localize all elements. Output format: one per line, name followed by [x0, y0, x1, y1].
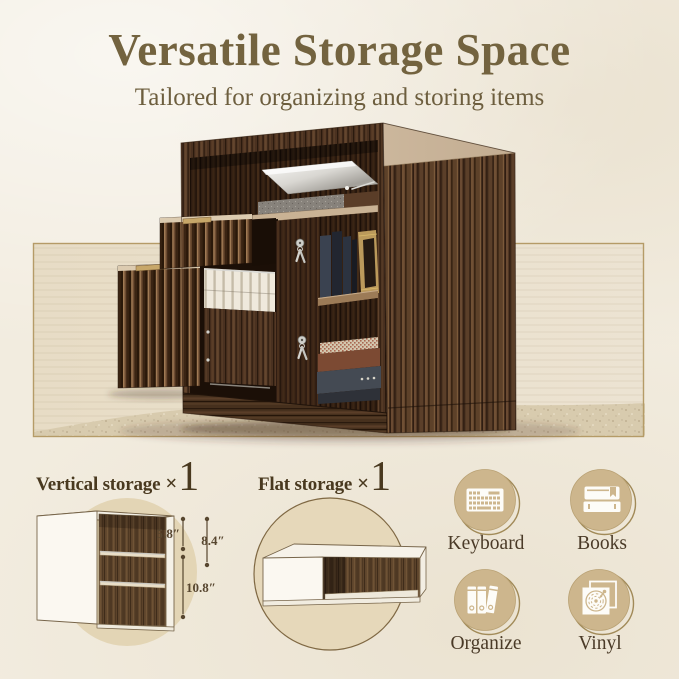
- books-upright: [320, 230, 379, 298]
- vinyl-icon: [565, 566, 635, 636]
- flat-storage-diagram: [254, 498, 426, 650]
- feature-vinyl: Vinyl: [555, 566, 645, 655]
- feature-label-vinyl: Vinyl: [555, 633, 645, 655]
- dimension-side-total: 8.4″: [201, 533, 224, 548]
- feature-label-books: Books: [557, 533, 647, 555]
- file-drawer-open: [118, 263, 276, 388]
- dimension-upper-shelf: 5.8″: [157, 526, 180, 541]
- upper-drawer-open: [160, 214, 278, 269]
- books-icon: [567, 466, 637, 536]
- cabinet-side-panel: [383, 123, 516, 433]
- dimension-lower-shelf: 10.8″: [186, 580, 216, 595]
- feature-organize: Organize: [441, 566, 531, 655]
- main-product-photo: [0, 120, 679, 455]
- feature-keyboard: Keyboard: [441, 466, 531, 555]
- books-stacked: [317, 337, 381, 404]
- feature-books: Books: [557, 466, 647, 555]
- hanging-files: [204, 268, 275, 312]
- cabinet-illustration: [118, 123, 516, 433]
- feature-label-keyboard: Keyboard: [441, 533, 531, 555]
- feature-label-organize: Organize: [441, 633, 531, 655]
- drawer-front-fluted-lower: [118, 263, 200, 388]
- keyboard-icon: [451, 466, 521, 536]
- page-subtitle: Tailored for organizing and storing item…: [0, 84, 679, 112]
- binders-icon: [451, 566, 521, 636]
- vertical-storage-diagram: 5.8″ 8.4″ 10.8″: [37, 498, 225, 646]
- page-title: Versatile Storage Space: [0, 24, 679, 76]
- product-infographic: Versatile Storage Space Tailored for org…: [0, 0, 679, 679]
- drawer-box: [204, 308, 276, 386]
